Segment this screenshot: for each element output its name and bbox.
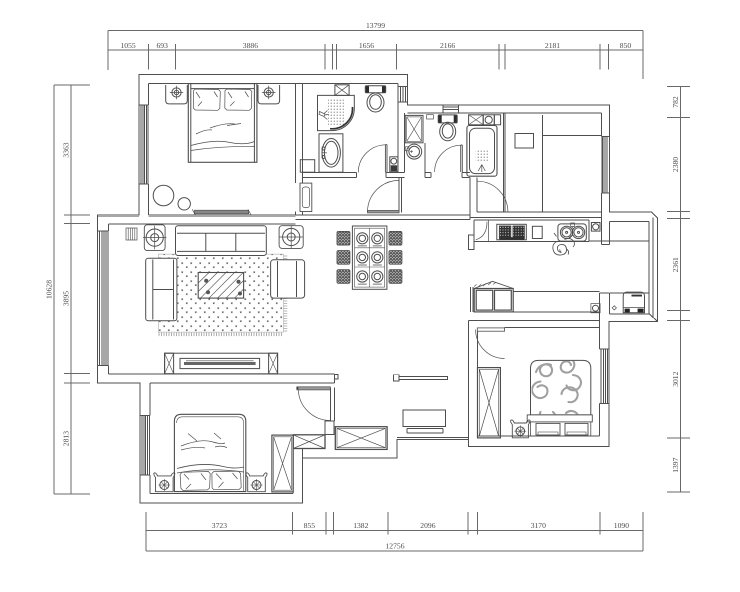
svg-text:850: 850 (620, 41, 632, 50)
svg-text:2096: 2096 (420, 521, 435, 530)
svg-text:693: 693 (157, 41, 169, 50)
svg-text:3363: 3363 (61, 142, 70, 157)
svg-text:2181: 2181 (545, 41, 560, 50)
svg-text:1055: 1055 (121, 41, 136, 50)
svg-text:1382: 1382 (353, 521, 368, 530)
svg-text:3170: 3170 (531, 521, 546, 530)
svg-text:3723: 3723 (212, 521, 227, 530)
svg-text:2166: 2166 (440, 41, 455, 50)
svg-text:2380: 2380 (671, 157, 680, 172)
svg-text:782: 782 (671, 96, 680, 108)
svg-text:10628: 10628 (45, 280, 54, 299)
svg-text:1656: 1656 (359, 41, 374, 50)
svg-text:13799: 13799 (366, 21, 385, 30)
svg-text:12756: 12756 (386, 542, 405, 551)
svg-text:2813: 2813 (61, 431, 70, 446)
svg-text:1397: 1397 (671, 457, 680, 472)
svg-text:3886: 3886 (243, 41, 258, 50)
svg-text:855: 855 (304, 521, 316, 530)
svg-text:1090: 1090 (614, 521, 629, 530)
svg-text:2361: 2361 (671, 257, 680, 272)
svg-text:3012: 3012 (671, 371, 680, 386)
svg-text:3895: 3895 (61, 291, 70, 306)
